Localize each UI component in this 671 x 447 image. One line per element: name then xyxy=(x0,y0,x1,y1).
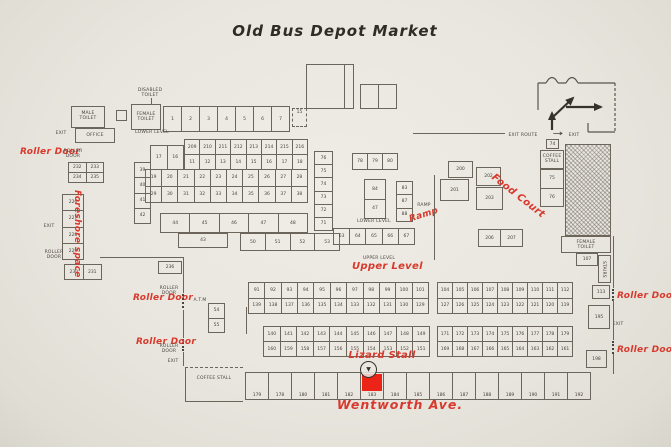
stall-cell: 234 xyxy=(68,172,87,183)
entrance-and-arrows xyxy=(500,60,671,140)
wall-segment xyxy=(344,64,345,109)
stall-cell: 66 xyxy=(383,228,399,245)
stall-cell: 72 xyxy=(314,205,333,218)
stall-cell: 177163 xyxy=(528,326,543,357)
exit-label-r: EXIT xyxy=(609,322,627,327)
stall-row-b: 2091121012211132121421315214162151721618 xyxy=(184,139,308,170)
stall-cell: 2636 xyxy=(259,169,275,203)
stall-row-234: 234235 xyxy=(68,172,104,183)
stall-cell: 73 xyxy=(314,192,333,205)
stall-cell: 76 xyxy=(314,151,333,165)
female-toilet-label: FEMALE TOILET xyxy=(133,112,159,122)
roller-door-annotation-r1: Roller Door xyxy=(617,291,671,301)
stall-cell: 186 xyxy=(430,372,453,400)
stall-cell: 2333 xyxy=(211,169,227,203)
stall-cell: 112119 xyxy=(558,282,573,314)
stall-cell: 2434 xyxy=(227,169,243,203)
stall-cell: 185 xyxy=(407,372,430,400)
stall-cell: 175165 xyxy=(498,326,513,357)
floor-plan: Old Bus Depot Market MALE TOILET OFFICE … xyxy=(0,0,671,447)
stall-cell: 173167 xyxy=(468,326,483,357)
wall-segment xyxy=(183,352,184,366)
page-title: Old Bus Depot Market xyxy=(230,22,440,40)
stairs-label: STAIRS xyxy=(601,258,606,280)
exit-label-left: EXIT xyxy=(40,224,58,229)
stall-cell: 107124 xyxy=(483,282,498,314)
stall-cell: 6 xyxy=(254,106,272,132)
stall-cell: 104127 xyxy=(437,282,453,314)
stall-cell: 174166 xyxy=(483,326,498,357)
stall-cell: 141159 xyxy=(281,326,298,357)
stall-box-113: 113 xyxy=(592,285,610,299)
stall-cell: 100130 xyxy=(396,282,412,314)
stall-cell: 84 xyxy=(364,179,386,200)
stall-cell: 109122 xyxy=(513,282,528,314)
stall-box-fc-b: 201 xyxy=(440,179,469,201)
stall-cell: 2 xyxy=(182,106,200,132)
stall-cell: 111120 xyxy=(543,282,558,314)
stall-cell: 48 xyxy=(279,213,308,233)
stall-cell: 76 xyxy=(540,189,564,208)
roller-door-ticks xyxy=(612,341,614,354)
stall-cell: 80 xyxy=(383,153,398,170)
foreshore-annotation: Foreshore space xyxy=(72,190,82,302)
stall-cell: 189 xyxy=(499,372,522,400)
stall-col-center: 767574737271 xyxy=(314,151,333,231)
stall-cell: 47 xyxy=(249,213,278,233)
roller-door-small-label-tl: ROLLER DOOR xyxy=(62,149,84,159)
stall-cell: 21214 xyxy=(231,139,246,170)
stall-block-center: 8447 xyxy=(364,179,386,219)
stall-cell: 3 xyxy=(200,106,218,132)
stall-cell: 172168 xyxy=(453,326,468,357)
wall-segment xyxy=(100,257,183,258)
roller-door-small-label-m2: ROLLER DOOR xyxy=(156,344,182,354)
stall-cell: 231 xyxy=(84,264,103,280)
stall-box-74: 74 xyxy=(546,139,559,149)
stall-cell: 4 xyxy=(218,106,236,132)
stall-cell: 178162 xyxy=(543,326,558,357)
stall-cell: 110121 xyxy=(528,282,543,314)
stall-row-b-lead: 1716 xyxy=(150,145,184,170)
stall-row-top: 1234567 xyxy=(163,106,290,132)
stall-row-center-top: 787980 xyxy=(352,153,398,170)
stall-row-bottom: 1791781801811821831841851861871881891901… xyxy=(245,372,591,400)
stall-cell: 21113 xyxy=(216,139,231,170)
door-box xyxy=(116,110,127,121)
stall-cell: 235 xyxy=(87,172,105,183)
stall-cell: 105126 xyxy=(453,282,468,314)
roller-door-small-label-l: ROLLER DOOR xyxy=(42,250,66,260)
stall-box-107: 107 xyxy=(576,253,598,266)
stall-cell: 46 xyxy=(220,213,249,233)
stall-cell: 20911 xyxy=(184,139,200,170)
stall-cell: 180 xyxy=(292,372,315,400)
stall-cell: 75 xyxy=(314,165,333,178)
lizard-stall-annotation: Lizard Stall xyxy=(322,350,442,361)
stall-cell: 176164 xyxy=(513,326,528,357)
stall-box-dashed: 15 xyxy=(292,108,307,127)
wall-segment xyxy=(613,354,614,374)
coffee-stall-region xyxy=(185,367,243,402)
stall-box-236: 236 xyxy=(158,261,182,274)
wall-segment xyxy=(378,84,379,109)
stall-row-c: 1929203021312232233324342535263627372838 xyxy=(145,169,308,203)
wall-segment xyxy=(246,307,247,334)
stall-box-ml: 43 xyxy=(178,233,228,248)
stall-cell: 74 xyxy=(314,178,333,191)
stall-cell: 108123 xyxy=(498,282,513,314)
stall-cell: 7 xyxy=(272,106,290,132)
wall-segment xyxy=(183,257,184,293)
stall-cell: 191 xyxy=(545,372,568,400)
stall-cell: 140160 xyxy=(263,326,281,357)
stall-cell: 64 xyxy=(350,228,366,245)
stall-cell: 91139 xyxy=(248,282,265,314)
stall-cell: 75 xyxy=(540,169,564,189)
stall-cell: 179 xyxy=(245,372,269,400)
stall-cell: 95135 xyxy=(314,282,330,314)
stall-col-atm: 5455 xyxy=(208,303,225,333)
stall-cell: 87 xyxy=(396,195,413,208)
wentworth-ave-annotation: Wentworth Ave. xyxy=(300,397,500,412)
stall-cell: 93137 xyxy=(282,282,298,314)
exit-label-office: EXIT xyxy=(52,131,70,136)
stall-cell: 42 xyxy=(134,209,151,224)
stall-cell: 2131 xyxy=(178,169,194,203)
wall-segment xyxy=(183,310,184,338)
stall-cell: 51 xyxy=(266,233,291,251)
stall-cell: 182 xyxy=(338,372,361,400)
stall-cell: 47 xyxy=(364,200,386,220)
stall-cell: 50 xyxy=(240,233,266,251)
stall-cell: 96134 xyxy=(331,282,347,314)
stall-row-center-bottom: 6364656667 xyxy=(333,228,415,245)
wall-segment xyxy=(413,133,505,134)
disabled-toilet-label: DISABLED TOILET xyxy=(136,88,164,98)
stall-cell: 184 xyxy=(384,372,407,400)
food-court-seating-hatch xyxy=(565,144,611,236)
lower-level-label-2: LOWER LEVEL xyxy=(356,219,392,224)
stall-cell: 1 xyxy=(163,106,182,132)
stall-cell: 55 xyxy=(208,319,225,334)
stall-cell: 92138 xyxy=(265,282,281,314)
office-label: OFFICE xyxy=(80,133,110,138)
stall-band2-right: 1711691721681731671741661751651761641771… xyxy=(437,326,573,357)
stall-row-fc: 206207 xyxy=(478,229,523,247)
stall-col-39: 39404142 xyxy=(134,162,151,224)
stall-cell: 2535 xyxy=(243,169,259,203)
exit-route-label: EXIT ROUTE xyxy=(505,133,541,138)
stall-cell: 192 xyxy=(568,372,591,400)
stall-row-ml2: 50515253 xyxy=(240,233,340,251)
stall-cell: 2030 xyxy=(162,169,178,203)
wall-segment xyxy=(613,300,614,340)
stall-cell: 178 xyxy=(269,372,292,400)
lizard-stall-marker-icon: ▼ xyxy=(360,361,377,378)
stall-col-tr: 7576 xyxy=(540,169,564,207)
stall-cell: 2232 xyxy=(195,169,211,203)
stall-cell: 83 xyxy=(396,181,413,195)
stall-cell: 181 xyxy=(315,372,338,400)
stall-box-198: 198 xyxy=(586,350,607,368)
stall-cell: 2838 xyxy=(292,169,308,203)
coffee-stall-label-bl: COFFEE STALL xyxy=(196,376,232,381)
stall-cell: 106125 xyxy=(468,282,483,314)
stall-box-195: 195 xyxy=(588,305,610,329)
stall-cell: 78 xyxy=(352,153,368,170)
stall-cell: 21012 xyxy=(200,139,215,170)
stall-cell: 188 xyxy=(476,372,499,400)
stall-cell: 94136 xyxy=(298,282,314,314)
stall-cell: 39 xyxy=(134,162,151,178)
stall-band1-left: 9113992138931379413695135961349713398132… xyxy=(248,282,429,314)
stall-cell: 40 xyxy=(134,178,151,193)
lower-level-label-1: LOWER LEVEL xyxy=(134,130,170,135)
stall-cell: 79 xyxy=(368,153,383,170)
stall-cell: 2737 xyxy=(276,169,292,203)
roller-door-ticks xyxy=(182,294,184,308)
stall-cell: 52 xyxy=(291,233,316,251)
coffee-stall-label-tr: COFFEE STALL xyxy=(541,154,563,164)
stall-cell: 142158 xyxy=(297,326,314,357)
stall-cell: 190 xyxy=(522,372,545,400)
stall-cell: 16 xyxy=(168,145,185,170)
stall-cell: 5 xyxy=(236,106,254,132)
roller-door-annotation-l1: Roller Door xyxy=(133,293,193,303)
stall-box-fc-a: 200 xyxy=(448,161,473,178)
stall-cell: 21315 xyxy=(247,139,262,170)
stall-cell: 21618 xyxy=(293,139,308,170)
stall-cell: 21416 xyxy=(262,139,277,170)
exit-label-tr: EXIT xyxy=(565,133,583,138)
roller-door-annotation-r2: Roller Door xyxy=(617,345,671,355)
stall-cell: 21517 xyxy=(277,139,292,170)
stall-cell: 44 xyxy=(160,213,190,233)
stall-cell: 179161 xyxy=(558,326,573,357)
male-toilet-label: MALE TOILET xyxy=(74,111,102,121)
stall-cell: 45 xyxy=(190,213,219,233)
stall-cell: 206 xyxy=(478,229,501,247)
stall-band1-right: 1041271051261061251071241081231091221101… xyxy=(437,282,573,314)
stall-cell: 54 xyxy=(208,303,225,319)
wall-segment xyxy=(613,236,614,288)
stall-cell: 101129 xyxy=(413,282,429,314)
stall-cell: 99131 xyxy=(380,282,396,314)
stall-cell: 207 xyxy=(501,229,523,247)
stall-box-fc-d: 203 xyxy=(476,187,503,210)
upper-level-annotation: Upper Level xyxy=(352,261,423,272)
stall-cell: 187 xyxy=(453,372,476,400)
stall-row-230: 230231 xyxy=(64,264,102,280)
female-toilet-label-right: FEMALE TOILET xyxy=(572,240,600,250)
stall-cell: 98132 xyxy=(364,282,380,314)
stall-cell: 67 xyxy=(399,228,415,245)
tall-structure-a xyxy=(306,64,354,109)
stall-cell: 97133 xyxy=(347,282,363,314)
stall-cell: 17 xyxy=(150,145,168,170)
stall-cell: 71 xyxy=(314,218,333,231)
stall-cell: 41 xyxy=(134,194,151,209)
stall-cell: 65 xyxy=(366,228,382,245)
stall-row-ml1: 4445464748 xyxy=(160,213,308,233)
exit-label-bl: EXIT xyxy=(164,359,182,364)
wall-segment xyxy=(434,175,435,260)
stall-cell: 63 xyxy=(333,228,350,245)
